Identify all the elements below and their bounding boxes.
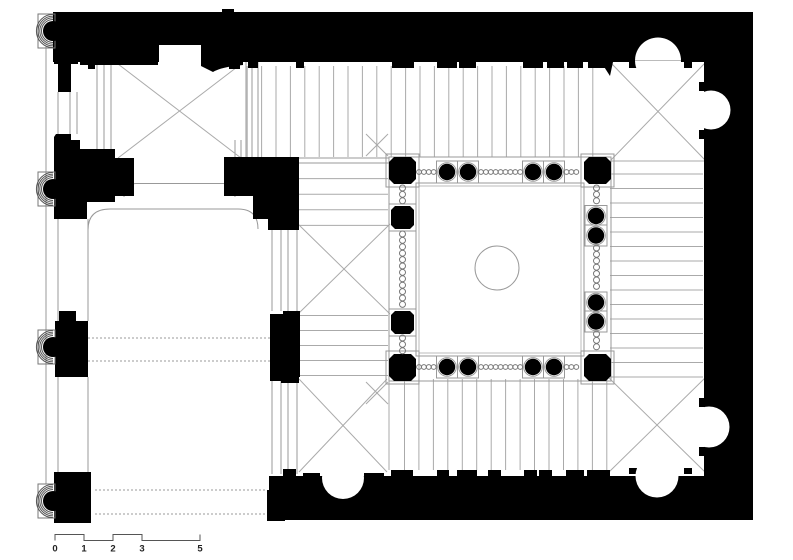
svg-text:5: 5 xyxy=(197,544,203,555)
svg-text:1: 1 xyxy=(81,544,87,555)
svg-text:2: 2 xyxy=(110,544,115,555)
svg-text:3: 3 xyxy=(139,544,144,555)
svg-text:0: 0 xyxy=(52,544,57,555)
